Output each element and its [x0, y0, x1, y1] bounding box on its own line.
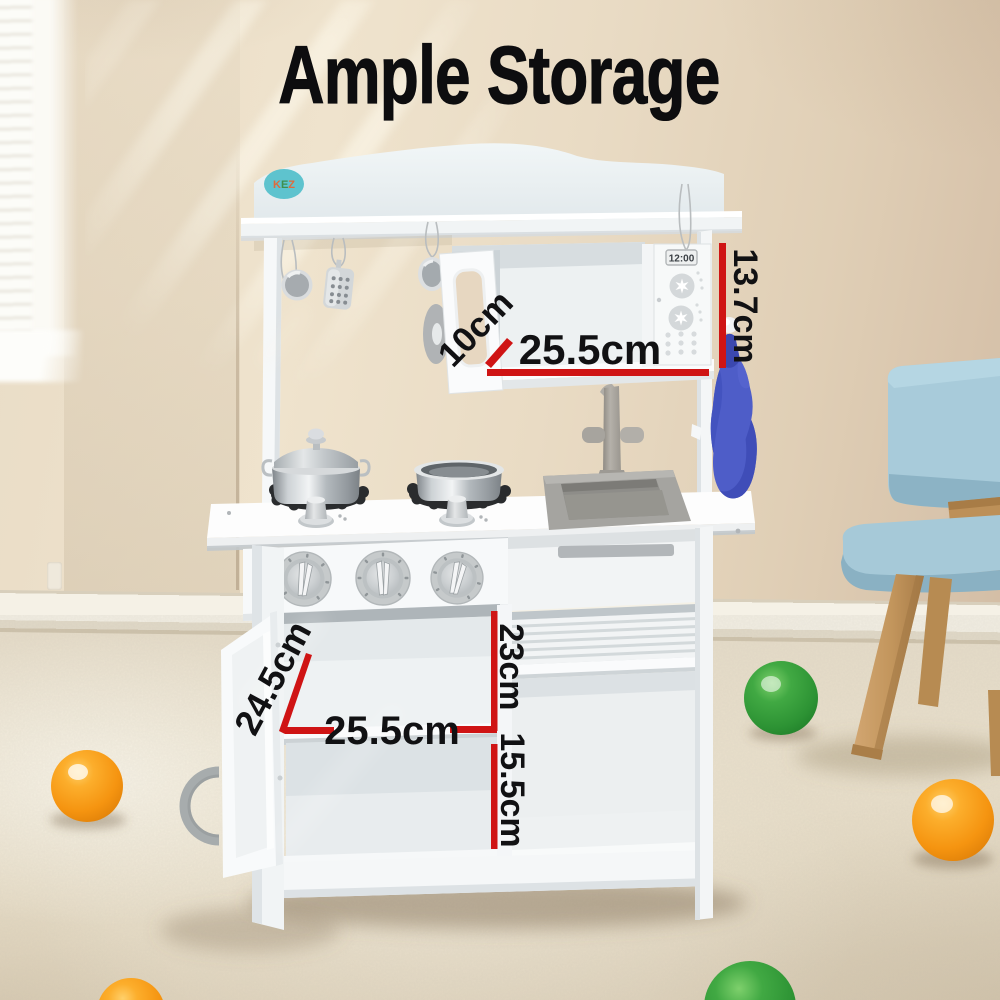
svg-text:23cm: 23cm: [492, 624, 530, 711]
svg-text:15.5cm: 15.5cm: [493, 732, 531, 847]
svg-text:25.5cm: 25.5cm: [324, 709, 460, 753]
svg-text:KEZ: KEZ: [273, 179, 295, 191]
svg-text:13.7cm: 13.7cm: [726, 248, 764, 363]
svg-text:12:00: 12:00: [669, 254, 695, 265]
svg-text:25.5cm: 25.5cm: [519, 326, 661, 373]
